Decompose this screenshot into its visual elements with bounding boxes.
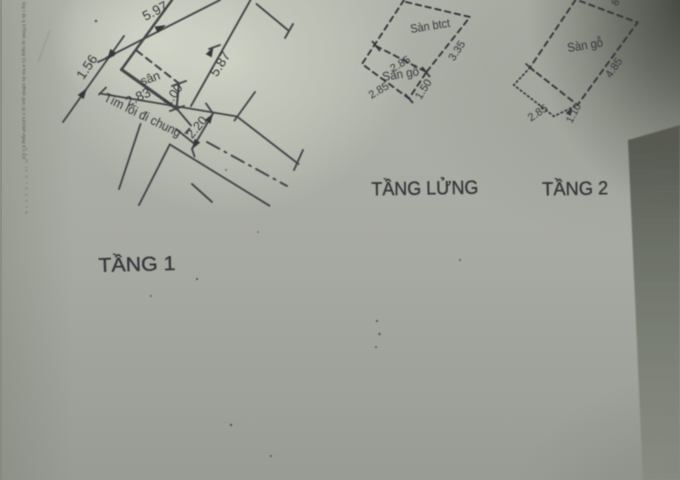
svg-text:TẦNG 1: TẦNG 1	[98, 252, 176, 277]
svg-text:Giy t do q SThNK cp ngay 21-4: Giy t do q SThNK cp ngay 21-4 hm do UBND…	[22, 2, 27, 160]
svg-text:v i m ts n i u c x l a: v i m ts n i u c x l a	[25, 148, 30, 215]
svg-text:TẦNG 2: TẦNG 2	[542, 177, 608, 200]
svg-text:TẦNG LỬNG: TẦNG LỬNG	[371, 177, 478, 201]
